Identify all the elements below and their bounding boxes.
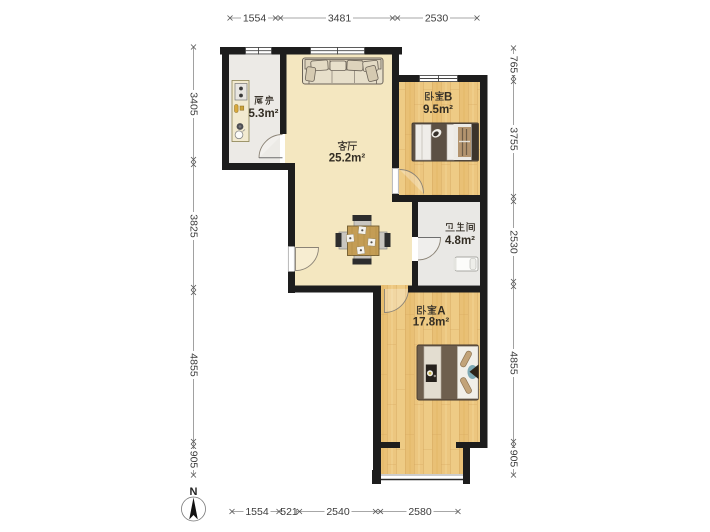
- svg-text:2540: 2540: [326, 506, 350, 518]
- svg-text:17.8m²: 17.8m²: [413, 317, 450, 329]
- svg-text:25.2m²: 25.2m²: [329, 153, 366, 165]
- svg-text:3755: 3755: [507, 127, 519, 151]
- svg-text:2580: 2580: [408, 506, 432, 518]
- svg-text:905: 905: [187, 451, 199, 469]
- svg-text:1554: 1554: [245, 506, 269, 518]
- svg-text:9.5m²: 9.5m²: [423, 104, 453, 116]
- svg-text:N: N: [190, 486, 198, 498]
- svg-text:3825: 3825: [187, 214, 199, 238]
- svg-text:1554: 1554: [243, 13, 267, 25]
- svg-text:2530: 2530: [425, 13, 449, 25]
- svg-text:5.3m²: 5.3m²: [248, 108, 278, 120]
- svg-text:521: 521: [280, 506, 298, 518]
- svg-text:4.8m²: 4.8m²: [445, 235, 475, 247]
- svg-text:905: 905: [507, 450, 519, 468]
- svg-text:B: B: [444, 92, 452, 104]
- svg-text:765: 765: [507, 56, 519, 74]
- svg-text:3481: 3481: [328, 13, 352, 25]
- svg-text:4855: 4855: [507, 351, 519, 375]
- svg-text:3405: 3405: [187, 92, 199, 116]
- svg-text:4855: 4855: [187, 353, 199, 377]
- svg-text:2530: 2530: [507, 230, 519, 254]
